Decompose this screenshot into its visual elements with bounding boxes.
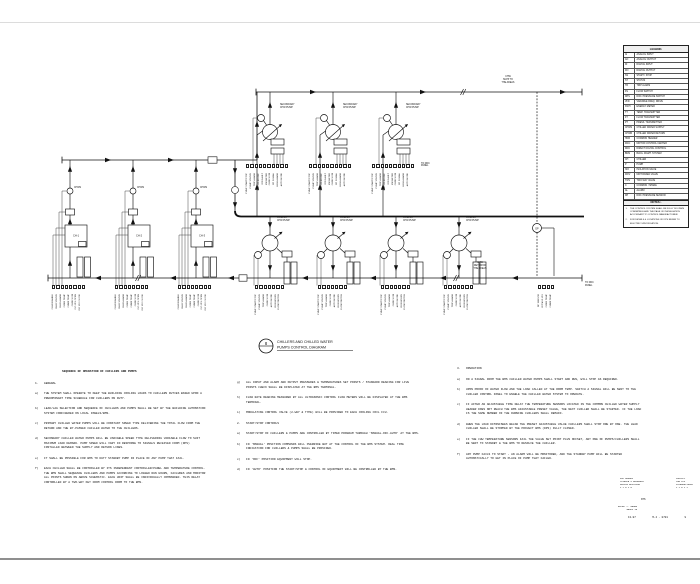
legend-desc: ISOLATION VALVE (635, 168, 688, 172)
terminal-box (56, 285, 59, 290)
io-point-label: TRIP ALARM (326, 294, 328, 307)
legend-abbr: AL (624, 189, 635, 193)
sequence-item-tag: h) (237, 396, 246, 405)
terminal-box (402, 164, 405, 169)
sequence-item-tag: 1. (35, 382, 44, 387)
terminal-box (376, 164, 379, 169)
sequence-item-text: MODULATING CONTROL VALVE (2-WAY & TYPE) … (246, 411, 421, 416)
sequence-items-1: 1. GENERAL a) THE SYSTEM SHALL OPERATE T… (35, 382, 207, 486)
chiller-tag: CH-1 (73, 234, 80, 238)
sequence-item: b) LEAD/LAG SELECTION AND SEQUENCE OF CH… (35, 407, 207, 416)
chiller-unit-1 (53, 160, 91, 286)
sequence-item-text: PRIMARY CHILLED WATER PUMPS WILL BE CONS… (44, 422, 207, 431)
io-labels-chiller-2: CHLR ENABLECHLR STATUSCHLR ALARMCHWS TEM… (115, 294, 145, 311)
terminal-box (385, 164, 388, 169)
sequence-item-tag: b) (457, 388, 466, 397)
io-point-label: PUMP START/STOP (318, 294, 320, 315)
io-point-label: CHW FLOW (456, 294, 458, 306)
titleblock-consultant: CONSULT THE W+P INTERNATIONAL 1 1 0 1 1 (676, 477, 698, 489)
sequence-item-text: LEAD/LAG SELECTION AND SEQUENCE OF CHILL… (44, 407, 207, 416)
io-point-label: CHLR ALARM (60, 294, 62, 308)
terminal-box (69, 285, 72, 290)
terminal-box (327, 285, 330, 290)
sequence-item-text: EACH CHILLER SHALL BE CONTROLLED BY ITS … (44, 467, 207, 485)
legend-desc: ANALOG OUTPUT (635, 58, 688, 62)
terminal-box (52, 285, 55, 290)
terminal-box (322, 285, 325, 290)
io-point-label: CHLR ALARM (123, 294, 125, 308)
io-point-label: ISO VLV CLOSE (142, 294, 144, 311)
terminal-box (255, 164, 258, 169)
terminal-strip-primary-4 (444, 285, 473, 290)
terminal-box (344, 285, 347, 290)
terminal-box (272, 285, 275, 290)
sequence-item: c) IN 'OFF' POSITION EQUIPMENT WILL STOP… (237, 458, 421, 463)
io-point-label: CHLR STATUS (56, 294, 58, 309)
titleblock-approval-name: L. AHMED GROUP 1A (627, 505, 638, 511)
io-labels-primary-4: PUMP START/STOPPUMP STATUSTRIP ALARMCHW … (444, 294, 470, 315)
terminal-box (199, 285, 202, 290)
io-point-label: HIGH ALARM (277, 173, 279, 187)
legend-desc: TWO WAY VALVE (635, 179, 688, 183)
chw-supply-header (62, 89, 582, 212)
io-point-label: PUMP START/STOP (372, 173, 374, 194)
terminal-box (389, 164, 392, 169)
legend-title: LEGEND. (624, 46, 688, 53)
legend-desc: PUMP (635, 163, 688, 167)
io-point-label: CHW FLOW (267, 294, 269, 306)
terminal-strip-chiller-2 (115, 285, 148, 290)
legend-desc: ANALOG INPUT (635, 53, 688, 57)
terminal-box (457, 285, 460, 290)
sequence-item: d) WHEN THE LOAD DIMINISHES BELOW THE PR… (457, 423, 644, 432)
sequence-item-text: GENERAL (44, 382, 207, 387)
primary-pump-4 (443, 216, 486, 286)
terminal-strip-secondary-1 (246, 164, 288, 169)
terminal-box (402, 285, 405, 290)
legend-desc: MOTOR CONTROL CENTER (635, 142, 688, 146)
terminal-box (61, 285, 64, 290)
legend-notes-title: NOTES:- (624, 200, 688, 207)
io-point-label: PUMP STATUS (259, 294, 261, 309)
primary-pump-label: PRIMARY CHW PUMP (340, 217, 353, 223)
legend-desc: TRIP ALARM (635, 84, 688, 88)
chiller-unit-2 (116, 160, 154, 286)
terminal-box (132, 285, 135, 290)
terminal-box (313, 164, 316, 169)
terminal-strip-chiller-1 (52, 285, 85, 290)
io-point-label: KW METER (266, 173, 268, 185)
legend-desc: CHILLER (635, 158, 688, 162)
terminal-box (348, 164, 351, 169)
legend-desc: FLOW SWITCH (635, 90, 688, 94)
sequence-item-text: IF THE CHW TEMPERATURE SENSORS FAIL THE … (466, 438, 644, 447)
legend-desc: DIRECT DIGITAL CONTROL (635, 147, 688, 151)
primary-pump-3 (380, 216, 423, 286)
sequence-item: a) ON A SIGNAL FROM THE BMS CHILLED WATE… (457, 378, 644, 383)
sequence-item-text: IF AFTER AN ADJUSTABLE TIME DELAY THE TE… (466, 403, 644, 417)
terminal-strip-primary-2 (318, 285, 347, 290)
terminal-box (263, 164, 266, 169)
io-point-label: CHWS TEMP (64, 294, 66, 307)
sequence-item: c) PRIMARY CHILLED WATER PUMPS WILL BE C… (35, 422, 207, 431)
terminal-box (191, 285, 194, 290)
terminal-box (272, 164, 275, 169)
terminal-box (187, 285, 190, 290)
legend-abbr: ISO (624, 168, 635, 172)
io-point-label: ISO VLV OPEN (201, 294, 203, 309)
legend-note-text: FOR DETAILS & LOCATIONS OF DPS REFER TO … (630, 219, 687, 225)
io-labels-chiller-3: CHLR ENABLECHLR STATUSCHLR ALARMCHWS TEM… (178, 294, 208, 311)
sequence-item-text: ALL INPUT AND ALARM AND OUTPUT PRESSURES… (246, 381, 421, 390)
io-point-label: CHLR ENABLE (115, 294, 117, 309)
io-point-label: CHWS TEMP (127, 294, 129, 307)
terminal-box (204, 285, 207, 290)
io-point-label: CHLR STATUS (119, 294, 121, 309)
terminal-box (343, 164, 346, 169)
io-point-label: CHW FLOW (198, 294, 200, 306)
io-point-label: DP SENSOR (538, 294, 540, 307)
terminal-strip-primary-3 (381, 285, 410, 290)
io-point-label: TRIP ALARM (263, 294, 265, 307)
title-callout: 8 CHILLERS AND CHILLED WATER PUMPS CONTR… (259, 339, 353, 353)
chws-mini-label: CHWS (200, 187, 207, 190)
legend-desc: COMMON / SPARE (635, 184, 688, 188)
terminal-box (335, 164, 338, 169)
terminal-box (398, 285, 401, 290)
legend-desc: DIGITAL INPUT (635, 63, 688, 67)
legend-desc: DIFF. PRESSURE SENSOR (635, 194, 688, 198)
sequence-item-text: OPERATION (466, 367, 644, 372)
sequence-item: i) MODULATING CONTROL VALVE (2-WAY & TYP… (237, 411, 421, 416)
terminal-box (280, 164, 283, 169)
legend-abbr: AO (624, 58, 635, 62)
io-labels-secondary-3: PUMP START/STOPPUMP STATUSTRIP ALARMVFD … (372, 173, 410, 194)
terminal-box (470, 285, 473, 290)
legend-desc: STATUS (635, 79, 688, 83)
terminal-box (145, 285, 148, 290)
legend-abbr: BMS (624, 152, 635, 156)
io-point-label: VFD FAULT (325, 173, 327, 185)
io-point-label: AUTO MODE (271, 294, 273, 307)
terminal-box (393, 164, 396, 169)
legend-abbr: DP (624, 194, 635, 198)
sequence-item: h) FLOW RATE READING MEASURED BY ALL ULT… (237, 396, 421, 405)
secondary-pump-label: SECONDARY CHW PUMP (343, 104, 358, 110)
terminal-box (259, 285, 262, 290)
to-ddc-label: TO DDC PANEL (585, 282, 594, 288)
supply-temp-sensor (232, 187, 239, 194)
io-point-label: KW METER (392, 173, 394, 185)
io-point-label: DP SIGNAL (399, 173, 401, 185)
io-point-label: PUMP STATUS (385, 294, 387, 309)
sequence-item-tag: e) (35, 457, 44, 462)
legend-desc: COMMON HEADER (635, 137, 688, 141)
sequence-item-tag: b) (237, 443, 246, 452)
io-point-label: CHWR TEMP (194, 294, 196, 308)
io-labels-primary-3: PUMP START/STOPPUMP STATUSTRIP ALARMCHW … (381, 294, 407, 315)
io-point-label: RUN HOURS (401, 294, 403, 307)
terminal-box (448, 285, 451, 290)
terminal-box (309, 164, 312, 169)
io-point-label: HIGH ALARM (403, 173, 405, 187)
sequence-item-text: ANY PUMP FAILS TO START - AN ALARM WILL … (466, 453, 644, 462)
chiller-tag: CH-3 (199, 234, 206, 238)
sequence-item-tag: c) (35, 422, 44, 431)
titleblock-approval-label: APPRD (618, 505, 625, 508)
sequence-item-tag: f) (457, 453, 466, 462)
terminal-box (318, 164, 321, 169)
terminal-box (390, 285, 393, 290)
io-point-label: CHW FLOW (332, 173, 334, 185)
legend-abbr: MOV (624, 173, 635, 177)
io-labels-right: DP SENSORBYPASS VLVCHWS TEMPCHWR TEMP (538, 294, 552, 308)
sequence-item-tag: 3. (457, 367, 466, 372)
terminal-box (542, 285, 545, 290)
drawing-number-prefix: 13-97 (628, 516, 636, 520)
legend-abbr: DI (624, 63, 635, 67)
terminal-box (267, 164, 270, 169)
sequence-item-tag: c) (457, 403, 466, 417)
io-point-label: PUMP STATUS (448, 294, 450, 309)
sequence-item-text: IT SHALL BE POSSIBLE FOR BMS TO DUTY STA… (44, 457, 207, 462)
io-point-label: VFD SPEED REF (321, 173, 323, 191)
sequence-item: d) IN 'AUTO' POSITION THE START/STOP & C… (237, 468, 421, 473)
io-labels-primary-2: PUMP START/STOPPUMP STATUSTRIP ALARMCHW … (318, 294, 344, 315)
terminal-box (124, 285, 127, 290)
chiller-tag: CH-2 (136, 234, 143, 238)
legend-desc: DIGITAL OUTPUT (635, 69, 688, 73)
to-ddc-label: TO DDC PANEL (421, 163, 430, 169)
secondary-pump-3 (379, 92, 410, 216)
terminal-box (444, 285, 447, 290)
drawing-number-rev: 9 (684, 516, 686, 520)
terminal-box (182, 285, 185, 290)
io-point-label: CHLR ENABLE (178, 294, 180, 309)
io-labels-chiller-1: CHLR ENABLECHLR STATUSCHLR ALARMCHWS TEM… (52, 294, 82, 311)
dp-sensor-label: DP (535, 227, 539, 230)
legend-abbr: VFD (624, 100, 635, 104)
terminal-box (465, 285, 468, 290)
terminal-box (547, 285, 550, 290)
legend-abbr: FT (624, 116, 635, 120)
io-point-label: PUMP START/STOP (444, 294, 446, 315)
legend-abbr: PT (624, 121, 635, 125)
io-point-label: ISO VLV OPEN (75, 294, 77, 309)
legend-abbr: ST (624, 79, 635, 83)
io-point-label: PUMP START/STOP (246, 173, 248, 194)
terminal-box (268, 285, 271, 290)
io-point-label: ISO VLV CLOSE (79, 294, 81, 311)
supply-line-label: CHW SUPP TO THE AREAS (494, 76, 522, 85)
terminal-box (259, 164, 262, 169)
decoupler-header (235, 211, 584, 217)
terminal-box (115, 285, 118, 290)
io-point-label: RUN HOURS (338, 294, 340, 307)
sequence-item-tag: i) (237, 411, 246, 416)
io-point-label: CHWR TEMP (68, 294, 70, 308)
terminal-box (372, 164, 375, 169)
legend-abbr: MCC (624, 142, 635, 146)
sequence-item: 2. START/STOP CONTROLS (237, 422, 421, 427)
primary-pump-label: PRIMARY CHW PUMP (277, 217, 290, 223)
sequence-item: a) START/STOP OF CHILLERS & PUMPS ARE CO… (237, 432, 421, 437)
terminal-box (538, 285, 541, 290)
io-point-label: TRIP ALARM (452, 294, 454, 307)
io-point-label: PUMP STATUS (322, 294, 324, 309)
sequence-item-text: IN 'OFF' POSITION EQUIPMENT WILL STOP. (246, 458, 421, 463)
terminal-box (406, 164, 409, 169)
secondary-pump-1 (253, 92, 284, 216)
io-point-label: CHW FLOW (330, 294, 332, 306)
dp-branch-line (542, 228, 555, 276)
legend-desc: PRESS. TRANSMITTER (635, 121, 688, 125)
legend-abbr: AI (624, 53, 635, 57)
io-point-label: VFD FAULT (262, 173, 264, 185)
io-point-label: ISO VLV CLOSE (205, 294, 207, 311)
io-point-label: CHW FLOW (135, 294, 137, 306)
legend-note-text: THE CONTROL SYSTEM SHALL BE FULLY DDC/BM… (630, 208, 687, 218)
titleblock-drawing-number: 13-97 M-4 - 0701 9 (628, 516, 686, 520)
terminal-box (178, 285, 181, 290)
chiller-unit-3 (179, 160, 217, 286)
legend-abbr: C (624, 184, 635, 188)
terminal-box (208, 285, 211, 290)
io-point-label: CHLR STATUS (182, 294, 184, 309)
sequence-items-2: g) ALL INPUT AND ALARM AND OUTPUT PRESSU… (237, 381, 421, 473)
drawing-number-main: M-4 - 0701 (652, 516, 668, 520)
terminal-box (411, 164, 414, 169)
terminal-box (331, 285, 334, 290)
sequence-item: e) IT SHALL BE POSSIBLE FOR BMS TO DUTY … (35, 457, 207, 462)
sequence-item-tag: a) (457, 378, 466, 383)
io-point-label: CHW FLOW (395, 173, 397, 185)
secondary-pump-label: SECONDARY CHW PUMP (406, 104, 421, 110)
sequence-item-text: IN 'AUTO' POSITION THE START/STOP & CONT… (246, 468, 421, 473)
io-point-label: FLOW SWITCH (341, 294, 343, 310)
io-point-label: PUMP START/STOP (309, 173, 311, 194)
io-point-label: ISO VLV OPEN (138, 294, 140, 309)
sequence-item: g) ALL INPUT AND ALARM AND OUTPUT PRESSU… (237, 381, 421, 390)
io-point-label: FLOW SWITCH (467, 294, 469, 310)
io-point-label: FLOW SWITCH (278, 294, 280, 310)
terminal-box (136, 285, 139, 290)
sequence-item-text: FLOW RATE READING MEASURED BY ALL ULTRAS… (246, 396, 421, 405)
chws-mini-label: CHWS (74, 187, 81, 190)
io-point-label: DP SIGNAL (273, 173, 275, 185)
io-point-label: DP SIGNAL (336, 173, 338, 185)
sequence-item-tag: b) (35, 407, 44, 416)
sequence-item: f) ANY PUMP FAILS TO START - AN ALARM WI… (457, 453, 644, 462)
sequence-item-tag: d) (457, 423, 466, 432)
legend-desc: BLDG. MGMT. SYSTEM (635, 152, 688, 156)
terminal-box (281, 285, 284, 290)
terminal-box (339, 285, 342, 290)
legend-abbr: CH (624, 158, 635, 162)
io-point-label: CHWR TEMP (131, 294, 133, 308)
terminal-box (285, 164, 288, 169)
terminal-box (119, 285, 122, 290)
io-point-label: VFD SPEED REF (258, 173, 260, 191)
io-labels-secondary-2: PUMP START/STOPPUMP STATUSTRIP ALARMVFD … (309, 173, 347, 194)
flow-meter-supply (208, 157, 217, 163)
sequence-item-tag: a) (35, 392, 44, 401)
legend-desc: ENERGY METER (635, 105, 688, 109)
drawing-sheet: DP CH-1 CH-2 CH-3 8 CHILLERS AND CHILLED… (0, 0, 700, 584)
terminal-box (82, 285, 85, 290)
sequence-item-text: START/STOP OF CHILLERS & PUMPS ARE CONTR… (246, 432, 421, 437)
io-point-label: CHW FLOW (269, 173, 271, 185)
terminal-box (381, 285, 384, 290)
legend-desc: FLOW TRANSMITTER (635, 116, 688, 120)
terminal-strip-secondary-2 (309, 164, 351, 169)
legend-desc: VARIABLE FREQ. DRIVE (635, 100, 688, 104)
terminal-box (318, 285, 321, 290)
terminal-box (385, 285, 388, 290)
legend-abbr: TR (624, 84, 635, 88)
terminal-box (381, 164, 384, 169)
sequence-item: a) THE SYSTEM SHALL OPERATE TO KEEP THE … (35, 392, 207, 401)
terminal-box (255, 285, 258, 290)
terminal-box (246, 164, 249, 169)
legend-rows: AI ANALOG INPUT AO ANALOG OUTPUT DI DIGI… (624, 53, 688, 200)
terminal-box (339, 164, 342, 169)
terminal-box (141, 285, 144, 290)
legend-abbr: FS (624, 90, 635, 94)
sequence-item: b) UPON PROOF OF WATER FLOW AND THE LOAD… (457, 388, 644, 397)
primary-pump-2 (317, 216, 360, 286)
sequence-item-text: THE SYSTEM SHALL OPERATE TO KEEP THE BUI… (44, 392, 207, 401)
terminal-strip-right (538, 285, 554, 290)
io-point-label: PUMP START/STOP (381, 294, 383, 315)
io-point-label: RUN HOURS (464, 294, 466, 307)
chw-return-main (48, 275, 582, 282)
secondary-pump-2 (316, 92, 347, 216)
terminal-box (264, 285, 267, 290)
flow-meter-return (239, 275, 247, 281)
terminal-box (195, 285, 198, 290)
legend-abbr: P (624, 163, 635, 167)
io-point-label: VFD SPEED REF (384, 173, 386, 191)
legend-abbr: HDR (624, 137, 635, 141)
terminal-box (407, 285, 410, 290)
terminal-strip-primary-1 (255, 285, 284, 290)
terminal-box (330, 164, 333, 169)
legend-desc: ALARM (635, 189, 688, 193)
sequence-item: c) IF AFTER AN ADJUSTABLE TIME DELAY THE… (457, 403, 644, 417)
terminal-box (322, 164, 325, 169)
legend-note: 1. THE CONTROL SYSTEM SHALL BE FULLY DDC… (626, 208, 687, 218)
io-point-label: PUMP STATUS (250, 173, 252, 188)
io-point-label: AUTO MODE (407, 173, 409, 186)
sequence-item-text: ON A SIGNAL FROM THE BMS CHILLED WATER P… (466, 378, 644, 383)
io-point-label: CHWS TEMP (190, 294, 192, 307)
terminal-box (65, 285, 68, 290)
sequence-item-tag: a) (237, 432, 246, 437)
io-point-label: TRIP ALARM (389, 294, 391, 307)
sequence-item: d) SECONDARY CHILLED WATER PUMPS WILL BE… (35, 437, 207, 451)
terminal-box (398, 164, 401, 169)
terminal-box (335, 285, 338, 290)
io-point-label: BYPASS VLV (542, 294, 544, 307)
terminal-box (78, 285, 81, 290)
return-line-label: CHW RET FROM THE AREAS (466, 262, 494, 271)
terminal-box (453, 285, 456, 290)
terminal-strip-chiller-3 (178, 285, 211, 290)
drawing-title-line1: CHILLERS AND CHILLED WATER (277, 340, 333, 344)
legend-desc: TEMP. TRANSMITTER (635, 111, 688, 115)
legend-abbr: TWV (624, 179, 635, 183)
